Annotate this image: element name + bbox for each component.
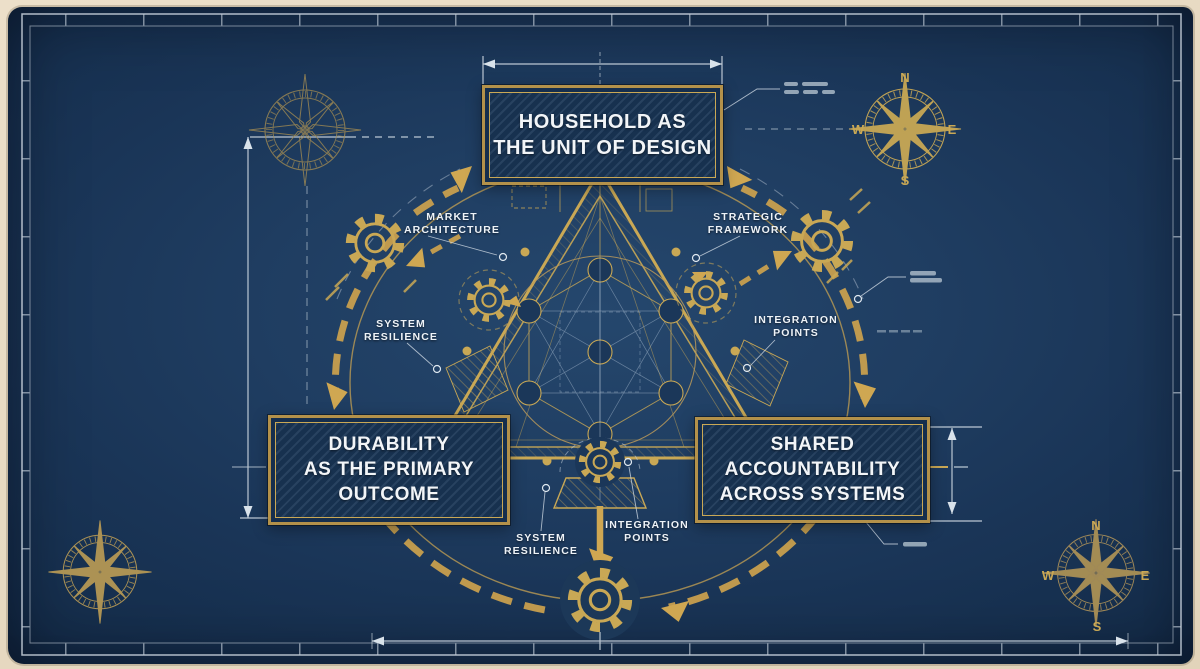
callout-system-resilience-bottom: SYSTEM RESILIENCE [504, 532, 578, 558]
compass-rose-icon [1042, 519, 1150, 627]
node-inner-panel: SHARED ACCOUNTABILITY ACROSS SYSTEMS [702, 424, 923, 516]
callout-market-architecture: MARKET ARCHITECTURE [404, 211, 500, 237]
node-label-line: HOUSEHOLD AS [519, 110, 687, 135]
svg-text:N: N [900, 70, 909, 85]
node-label-line: ACCOUNTABILITY [725, 458, 901, 482]
callout-line: SYSTEM [364, 318, 438, 331]
callout-integration-points-right: INTEGRATION POINTS [754, 314, 838, 340]
node-inner-panel: HOUSEHOLD AS THE UNIT OF DESIGN [489, 92, 716, 178]
svg-text:S: S [901, 173, 910, 188]
node-label-line: OUTCOME [338, 483, 439, 507]
node-inner-panel: DURABILITY AS THE PRIMARY OUTCOME [275, 422, 503, 518]
gear-icon [470, 281, 507, 318]
compass-rose-icon [249, 74, 361, 186]
svg-text:E: E [948, 122, 957, 137]
callout-line: POINTS [605, 532, 689, 545]
gear-icon [796, 215, 849, 268]
callout-system-resilience-left: SYSTEM RESILIENCE [364, 318, 438, 344]
svg-text:S: S [1093, 619, 1102, 634]
compass-rose-icon [849, 73, 961, 185]
callout-line: STRATEGIC [708, 211, 788, 224]
compass-rose-icon [48, 520, 151, 623]
svg-text:W: W [1042, 568, 1055, 583]
callout-line: MARKET [404, 211, 500, 224]
callout-line: INTEGRATION [605, 519, 689, 532]
node-label-line: SHARED [771, 433, 855, 457]
callout-line: SYSTEM [504, 532, 578, 545]
node-shared-accountability: SHARED ACCOUNTABILITY ACROSS SYSTEMS [695, 417, 930, 523]
node-label-line: DURABILITY [328, 433, 449, 457]
svg-text:E: E [1141, 568, 1150, 583]
node-label-line: AS THE PRIMARY [304, 458, 474, 482]
callout-line: RESILIENCE [504, 545, 578, 558]
blueprint-canvas: N E S W N E S W HOUSEHOLD AS THE UNIT OF… [0, 0, 1200, 669]
node-household-unit-of-design: HOUSEHOLD AS THE UNIT OF DESIGN [482, 85, 723, 185]
svg-text:W: W [852, 122, 865, 137]
node-durability-primary-outcome: DURABILITY AS THE PRIMARY OUTCOME [268, 415, 510, 525]
callout-line: INTEGRATION [754, 314, 838, 327]
callout-line: FRAMEWORK [708, 224, 788, 237]
callout-line: RESILIENCE [364, 331, 438, 344]
svg-text:N: N [1091, 518, 1100, 533]
callout-line: ARCHITECTURE [404, 224, 500, 237]
callout-integration-points-bottom: INTEGRATION POINTS [605, 519, 689, 545]
node-label-line: THE UNIT OF DESIGN [493, 136, 712, 161]
callout-line: POINTS [754, 327, 838, 340]
callout-strategic-framework: STRATEGIC FRAMEWORK [708, 211, 788, 237]
node-label-line: ACROSS SYSTEMS [720, 483, 906, 507]
gear-icon [687, 274, 724, 311]
